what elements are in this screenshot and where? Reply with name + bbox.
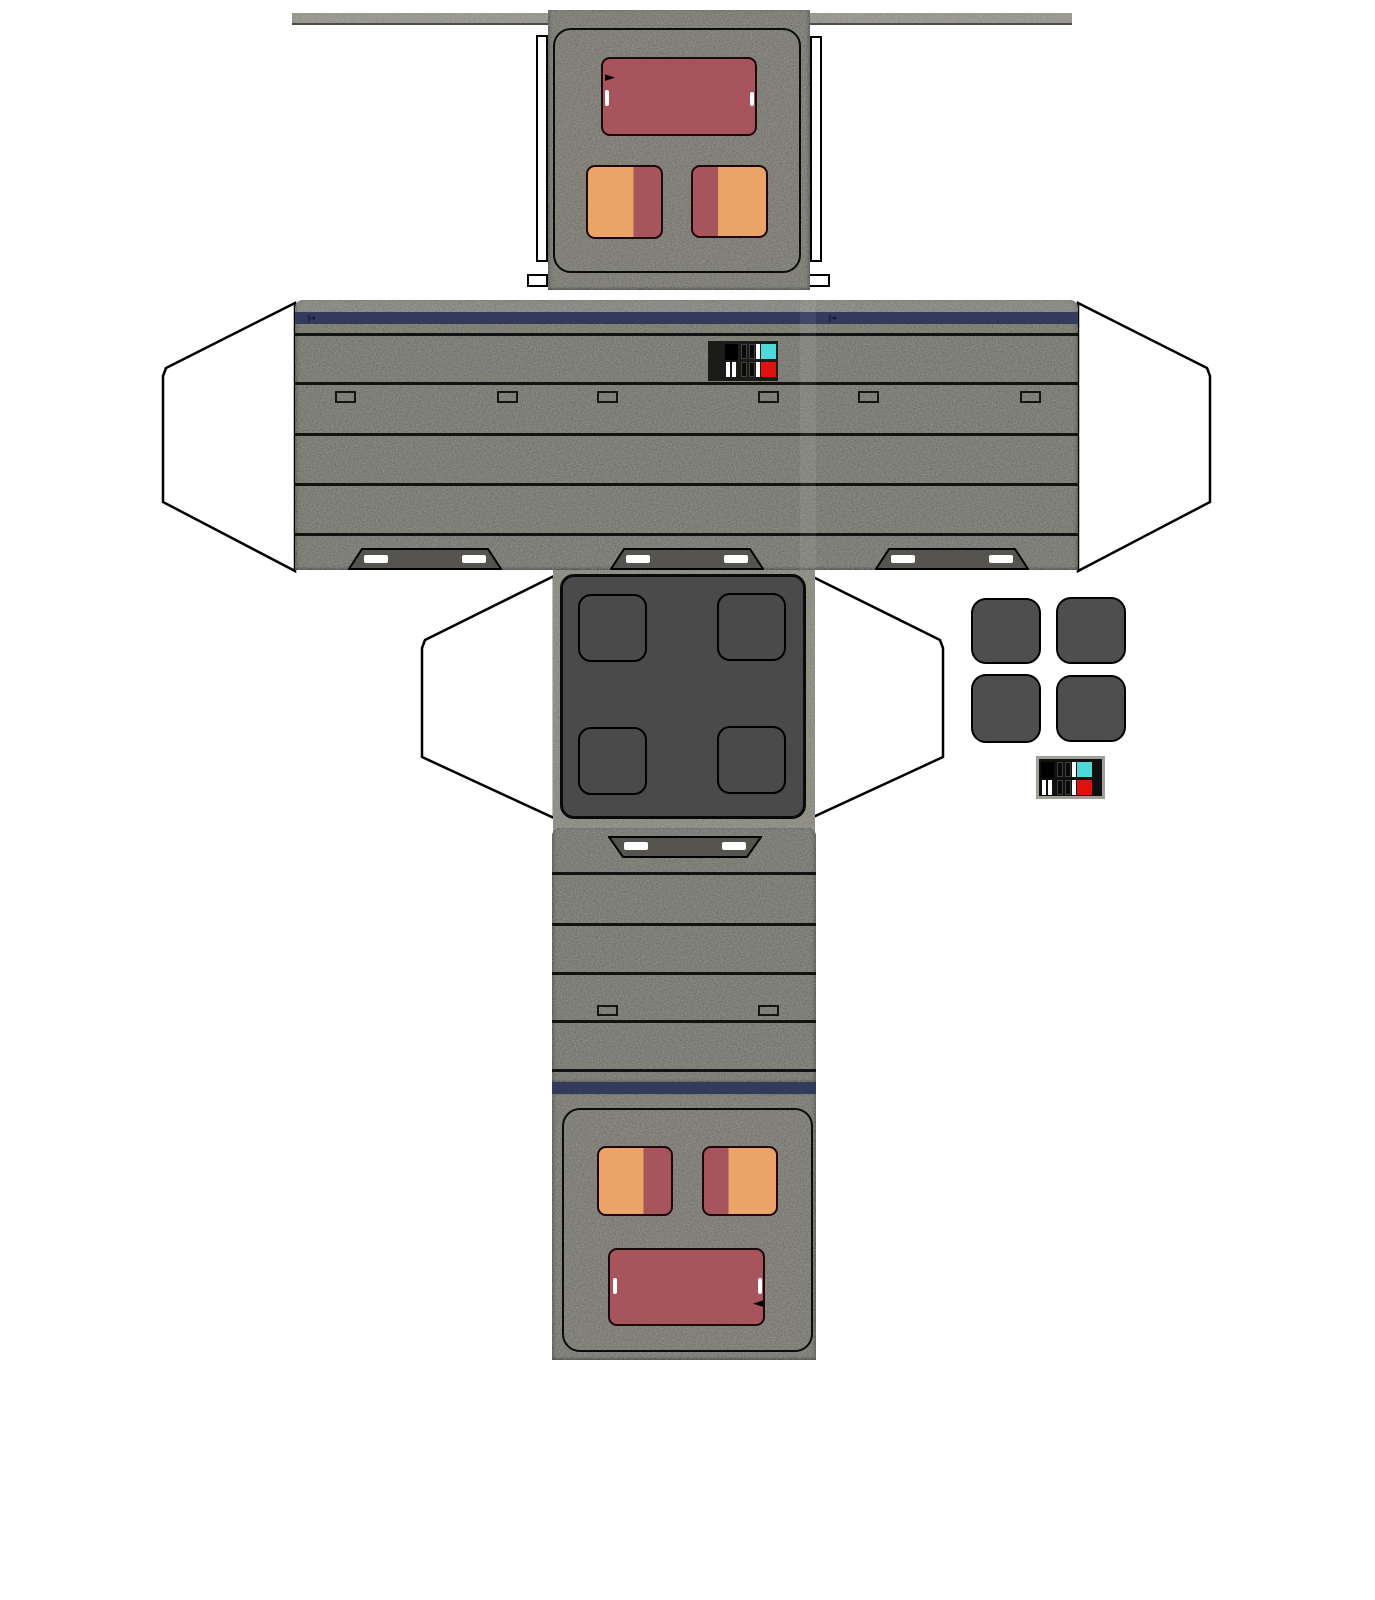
plating-line <box>552 872 816 875</box>
skid-plate-inverted <box>608 836 762 858</box>
decal-white-bar <box>726 362 730 377</box>
spare-foot-pad <box>971 674 1041 743</box>
decal-slot <box>1057 780 1063 795</box>
control-decal-band <box>708 341 778 381</box>
plating-line <box>295 533 1078 536</box>
skid-plate <box>875 548 1029 570</box>
decal-slot <box>741 344 747 359</box>
fold-arrow-right-icon: ► <box>605 72 615 84</box>
rear-navy-stripe <box>552 1082 816 1094</box>
stripe-mark-left: ‖◄ <box>307 314 314 322</box>
foot-pad-outline <box>717 726 786 794</box>
front-vent-left <box>586 165 663 239</box>
decal-white-key <box>756 362 760 377</box>
rear-vent-left <box>597 1146 673 1216</box>
rear-viewport: ◄ <box>608 1248 765 1326</box>
hull-vent <box>597 391 618 403</box>
glue-tab-right <box>810 36 822 262</box>
skid-plate <box>610 548 764 570</box>
viewport-tick-right <box>758 1278 762 1294</box>
decal-slot <box>749 362 755 377</box>
decal-white-key <box>1072 780 1076 795</box>
bottom-face-panel <box>560 574 806 819</box>
decal-slot <box>749 344 755 359</box>
viewport-tick-left <box>613 1278 617 1294</box>
decal-white-bar <box>1048 780 1052 795</box>
glue-tab-left <box>536 35 548 262</box>
hull-vent <box>497 391 518 403</box>
plating-line <box>295 333 1078 336</box>
decal-white-key <box>756 344 760 359</box>
plating-line <box>295 382 1078 385</box>
hull-vent <box>758 1005 779 1016</box>
foot-pad-outline <box>578 594 647 662</box>
decal-black-key <box>725 344 738 360</box>
front-vent-right <box>691 165 768 238</box>
rear-vent-right <box>702 1146 778 1216</box>
foot-pad-outline <box>578 727 647 795</box>
rear-face-panel: ◄ <box>552 1094 816 1360</box>
spare-foot-pad <box>1056 675 1126 742</box>
stripe-mark-right: ‖◄ <box>828 314 835 322</box>
foot-pad-outline <box>717 593 786 661</box>
front-viewport: ► <box>601 57 757 136</box>
decal-cyan-light <box>761 344 776 359</box>
decal-slot <box>1065 762 1071 777</box>
hull-vent <box>858 391 879 403</box>
papercraft-sheet: ► ‖◄ ‖◄ <box>0 0 1375 1600</box>
band-navy-stripe: ‖◄ ‖◄ <box>295 312 1078 324</box>
side-wrap-band: ‖◄ ‖◄ <box>295 300 1078 570</box>
fold-arrow-left-icon: ◄ <box>753 1298 763 1310</box>
decal-red-light <box>1077 780 1092 795</box>
decal-white-bar <box>1042 780 1046 795</box>
hull-vent <box>758 391 779 403</box>
skid-plate <box>348 548 502 570</box>
decal-red-light <box>761 362 776 377</box>
decal-black-key <box>1041 762 1054 778</box>
rear-wrap-band <box>552 828 816 1083</box>
decal-cyan-light <box>1077 762 1092 777</box>
glue-tab-bottom-right <box>808 274 830 287</box>
plating-line <box>295 433 1078 436</box>
spare-foot-pad <box>971 598 1041 664</box>
glue-flap-bottom-right <box>811 576 943 818</box>
glue-flap-band-left <box>163 303 295 571</box>
hull-vent <box>597 1005 618 1016</box>
glue-flap-band-right <box>1078 303 1210 571</box>
texture-noise <box>552 828 816 1083</box>
decal-white-key <box>1072 762 1076 777</box>
decal-slot <box>1065 780 1071 795</box>
glue-flap-bottom-left <box>422 576 554 818</box>
hull-vent <box>1020 391 1041 403</box>
decal-slot <box>741 362 747 377</box>
viewport-tick-left <box>605 90 609 106</box>
plating-line <box>552 972 816 975</box>
band-top-highlight <box>295 300 1078 312</box>
spare-foot-pad <box>1056 597 1126 664</box>
texture-seam <box>800 300 816 570</box>
plating-line <box>552 923 816 926</box>
glue-tab-bottom-left <box>527 274 548 287</box>
control-decal-spare <box>1036 756 1105 799</box>
plating-line <box>295 483 1078 486</box>
plating-line <box>552 1020 816 1023</box>
plating-line <box>552 1069 816 1072</box>
front-face-panel: ► <box>548 10 810 290</box>
decal-slot <box>1057 762 1063 777</box>
decal-white-bar <box>732 362 736 377</box>
viewport-tick-right <box>750 92 754 106</box>
hull-vent <box>335 391 356 403</box>
